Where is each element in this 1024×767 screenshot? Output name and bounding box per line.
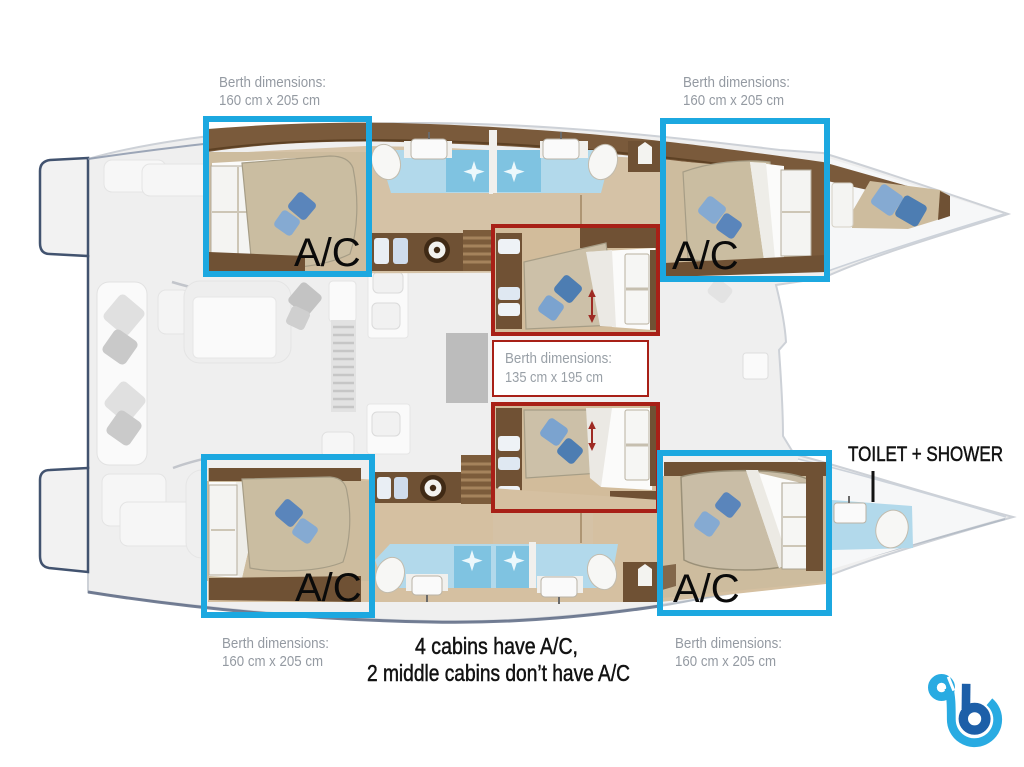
svg-text:2 middle cabins don’t have A/C: 2 middle cabins don’t have A/C [367, 660, 630, 686]
svg-text:TOILET + SHOWER: TOILET + SHOWER [848, 443, 1003, 466]
svg-text:Berth dimensions:: Berth dimensions: [505, 350, 612, 367]
svg-text:A/C: A/C [673, 567, 740, 611]
svg-text:135 cm x 195 cm: 135 cm x 195 cm [505, 369, 603, 386]
svg-text:A/C: A/C [295, 566, 362, 610]
svg-text:Berth dimensions:: Berth dimensions: [675, 635, 782, 652]
svg-text:160 cm x 205 cm: 160 cm x 205 cm [675, 653, 776, 670]
svg-text:A/C: A/C [294, 231, 361, 275]
svg-text:160 cm x 205 cm: 160 cm x 205 cm [683, 92, 784, 109]
svg-text:Berth dimensions:: Berth dimensions: [219, 74, 326, 91]
svg-text:Berth dimensions:: Berth dimensions: [683, 74, 790, 91]
svg-text:Berth dimensions:: Berth dimensions: [222, 635, 329, 652]
svg-text:160 cm x 205 cm: 160 cm x 205 cm [219, 92, 320, 109]
svg-text:4 cabins have A/C,: 4 cabins have A/C, [415, 633, 578, 659]
svg-text:160 cm x 205 cm: 160 cm x 205 cm [222, 653, 323, 670]
svg-text:A/C: A/C [672, 234, 739, 278]
